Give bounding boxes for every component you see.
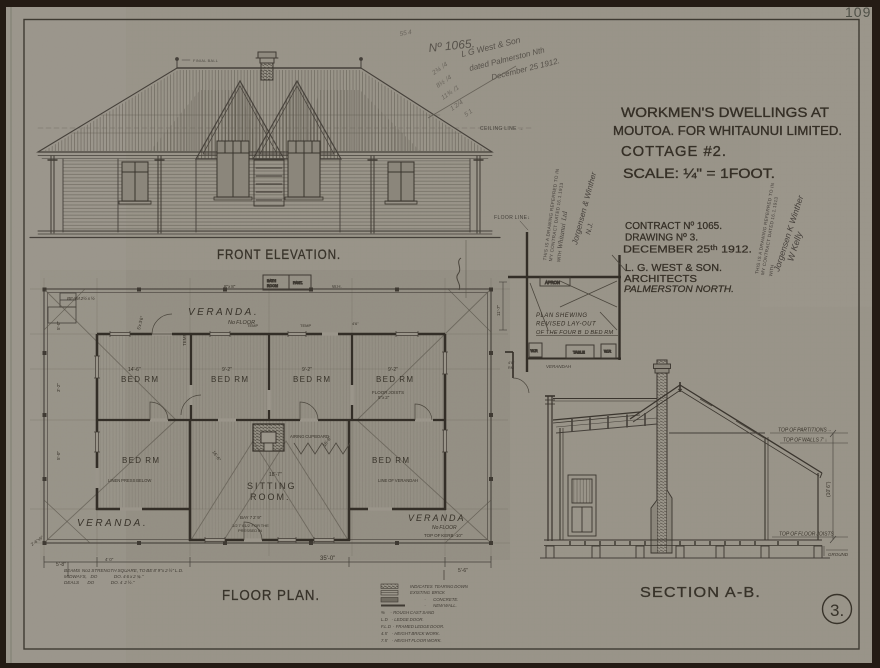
svg-text:SCALE: ¼" = 1FOOT.: SCALE: ¼" = 1FOOT. <box>623 165 775 181</box>
svg-text:LINEN PRESS BELOW: LINEN PRESS BELOW <box>108 478 151 483</box>
svg-text:11'-7": 11'-7" <box>496 304 501 316</box>
svg-text:9'-2": 9'-2" <box>222 367 232 373</box>
svg-text:BEAMS No1 STRENGTH SQUARE, TO: BEAMS No1 STRENGTH SQUARE, TO BE 8' 9"x … <box>64 567 183 573</box>
svg-text:BED RM: BED RM <box>293 375 331 384</box>
svg-text:TOP OF KERB -10": TOP OF KERB -10" <box>424 533 463 538</box>
svg-text:BATH: BATH <box>267 279 277 283</box>
svg-text:ROOM.: ROOM. <box>250 492 291 502</box>
svg-text:COTTAGE #2.: COTTAGE #2. <box>621 143 727 160</box>
svg-text:EXISTING BRICK: EXISTING BRICK <box>410 590 446 595</box>
svg-text:4'6": 4'6" <box>352 321 359 326</box>
svg-text:18'-7": 18'-7" <box>269 472 282 478</box>
svg-text:⋅ NEW WALL.: ⋅ NEW WALL. <box>424 603 457 608</box>
svg-text:14'-6": 14'-6" <box>128 367 141 373</box>
svg-text:No FLOOR: No FLOOR <box>432 525 457 531</box>
svg-text:BED RM: BED RM <box>376 375 414 384</box>
svg-text:REVISED LAY-OUT: REVISED LAY-OUT <box>536 322 597 328</box>
svg-text:PANT.: PANT. <box>293 281 303 285</box>
svg-text:5'-0": 5'-0" <box>56 321 61 330</box>
svg-text:FLOOR PLAN.: FLOOR PLAN. <box>222 588 320 604</box>
svg-text:FINIAL BALL: FINIAL BALL <box>193 59 218 63</box>
svg-text:DRAWING Nº 3.: DRAWING Nº 3. <box>625 233 698 244</box>
svg-text:MOUTOA. FOR WHITAUNUI LIMITED.: MOUTOA. FOR WHITAUNUI LIMITED. <box>613 124 842 138</box>
svg-text:CONTRACT Nº 1065.: CONTRACT Nº 1065. <box>625 221 722 232</box>
svg-text:TOP OF PARTITIONS→: TOP OF PARTITIONS→ <box>778 428 832 434</box>
svg-text:⋅ CONCRETE.: ⋅ CONCRETE. <box>424 597 458 602</box>
svg-text:BAY 7 2' 9": BAY 7 2' 9" <box>240 515 262 520</box>
svg-text:APRON: APRON <box>545 280 560 285</box>
svg-text:35'-0": 35'-0" <box>320 556 335 562</box>
svg-text:BED RM: BED RM <box>122 456 160 465</box>
svg-text:(10' 6"): (10' 6") <box>826 481 832 497</box>
svg-text:4'6": 4'6" <box>508 361 515 365</box>
svg-text:TEMP: TEMP <box>300 323 311 328</box>
svg-text:7.5' ⋅ HEIGHT FLOOR WORK.: 7.5' ⋅ HEIGHT FLOOR WORK. <box>381 638 442 643</box>
svg-text:W.H.: W.H. <box>332 284 342 289</box>
svg-text:WORKMEN'S DWELLINGS AT: WORKMEN'S DWELLINGS AT <box>621 104 829 120</box>
svg-text:L.D ⋅ LEDGE DOOR.: L.D ⋅ LEDGE DOOR. <box>381 617 424 622</box>
svg-text:VERANDA: VERANDA <box>408 513 466 523</box>
svg-text:TEMP: TEMP <box>247 323 258 328</box>
svg-text:DEALS DO: DEALS DO DO. 4 2 ½." <box>64 579 135 585</box>
svg-text:BED RM: BED RM <box>211 375 249 384</box>
svg-text:PLAN SHEWING: PLAN SHEWING <box>536 313 588 319</box>
svg-text:9'-2": 9'-2" <box>388 367 398 373</box>
svg-text:TEMP: TEMP <box>182 333 187 346</box>
svg-text:% ⋅ ROUGH CAST SAND: % ⋅ ROUGH CAST SAND <box>381 610 434 615</box>
svg-text:PALMERSTON NORTH.: PALMERSTON NORTH. <box>624 284 734 295</box>
svg-text:W.R: W.R <box>604 350 611 354</box>
svg-text:TOP OF FLOOR JOISTS: TOP OF FLOOR JOISTS <box>779 532 835 538</box>
svg-text:LINE OF VERANDAH: LINE OF VERANDAH <box>378 478 418 483</box>
svg-text:5"x 2": 5"x 2" <box>378 395 390 400</box>
svg-text:OF THE FOUR B D BED RM: OF THE FOUR B D BED RM <box>536 330 614 336</box>
svg-text:3'-2": 3'-2" <box>56 383 61 392</box>
svg-text:AIRING CUPBOARD: AIRING CUPBOARD <box>290 434 329 439</box>
svg-text:3.: 3. <box>830 601 844 620</box>
svg-text:FLOOR LINE↓: FLOOR LINE↓ <box>494 215 530 221</box>
svg-text:4' 0": 4' 0" <box>105 557 114 562</box>
svg-text:VERANDA.: VERANDA. <box>188 307 259 318</box>
svg-text:F.L.D ⋅ FRAMED LEDGE DOOR.: F.L.D ⋅ FRAMED LEDGE DOOR. <box>381 624 444 629</box>
svg-text:BEAM 2½ x ½: BEAM 2½ x ½ <box>67 295 95 301</box>
svg-text:9'-2": 9'-2" <box>302 367 312 373</box>
svg-text:ROOM: ROOM <box>267 284 278 288</box>
svg-text:VERANDA.: VERANDA. <box>77 518 148 529</box>
svg-text:5'-6": 5'-6" <box>458 568 468 574</box>
svg-text:BED RM: BED RM <box>372 456 410 465</box>
svg-text:CEILING LINE →: CEILING LINE → <box>480 126 524 132</box>
svg-text:FRONT ELEVATION.: FRONT ELEVATION. <box>217 247 341 262</box>
svg-text:INDICATES TEARING DOWN: INDICATES TEARING DOWN <box>410 584 469 589</box>
svg-text:L. G. WEST & SON.: L. G. WEST & SON. <box>625 262 722 274</box>
svg-text:DECEMBER 25ᵗʰ 1912.: DECEMBER 25ᵗʰ 1912. <box>623 244 752 256</box>
svg-text:SITTING: SITTING <box>247 481 297 491</box>
svg-text:109: 109 <box>845 4 871 20</box>
svg-text:TABLE: TABLE <box>573 351 585 355</box>
svg-text:TOP OF WALLS 7' ↓: TOP OF WALLS 7' ↓ <box>783 438 827 444</box>
svg-text:4.5' ⋅ HEIGHT BRICK WORK.: 4.5' ⋅ HEIGHT BRICK WORK. <box>381 631 440 636</box>
svg-text:VERANDAH: VERANDAH <box>546 364 572 369</box>
svg-text:MIDWAYS, DO: MIDWAYS, DO DO. 4 6 x 2 ¾." <box>64 574 144 579</box>
svg-text:8"x 8": 8"x 8" <box>224 284 236 289</box>
svg-text:BED RM: BED RM <box>121 375 159 384</box>
svg-text:W.R: W.R <box>531 349 538 353</box>
svg-text:SECTION A-B.: SECTION A-B. <box>640 585 761 601</box>
svg-text:PRESSED IN: PRESSED IN <box>238 528 262 533</box>
svg-text:GROUND: GROUND <box>828 552 849 557</box>
svg-text:5'-0": 5'-0" <box>56 451 61 460</box>
